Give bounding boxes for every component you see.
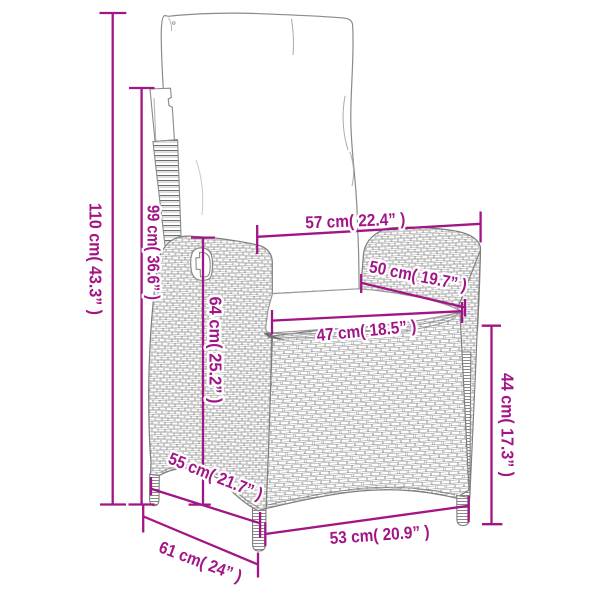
svg-text:64 cm( 25.2” ): 64 cm( 25.2” )	[206, 297, 226, 404]
svg-text:110 cm( 43.3” ): 110 cm( 43.3” )	[86, 203, 106, 315]
svg-text:99 cm( 36.6” ): 99 cm( 36.6” )	[144, 205, 164, 300]
svg-text:57 cm( 22.4” ): 57 cm( 22.4” )	[305, 209, 406, 233]
svg-text:44 cm( 17.3” ): 44 cm( 17.3” )	[498, 373, 518, 477]
